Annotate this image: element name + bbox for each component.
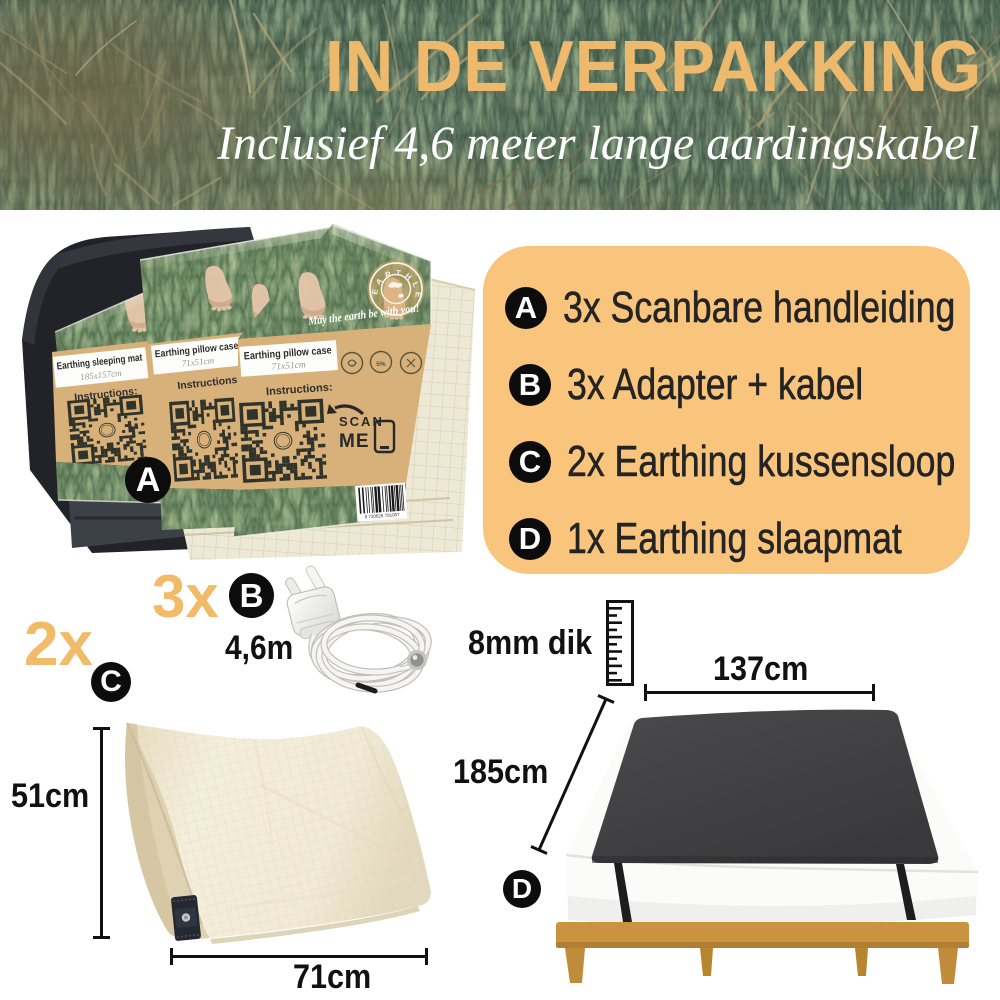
svg-text:5%: 5% <box>376 361 386 368</box>
svg-text:ME: ME <box>339 431 370 452</box>
